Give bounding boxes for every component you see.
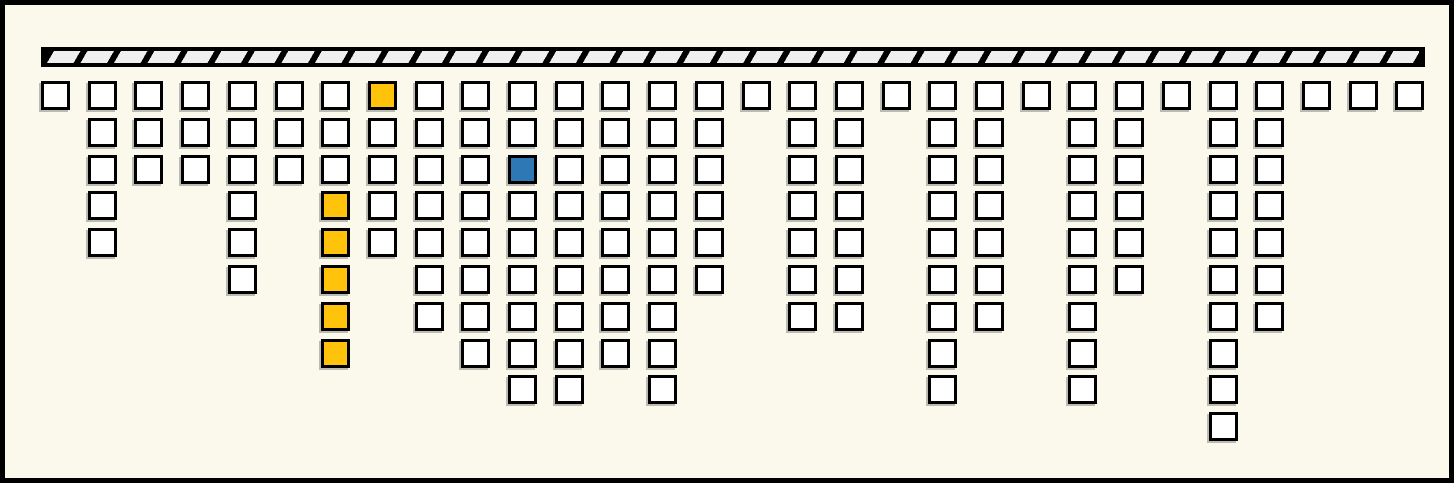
cell-c18-r6 [835, 265, 864, 294]
cell-c20-r2 [928, 118, 957, 147]
cell-c17-r2 [788, 118, 817, 147]
cell-c24-r5 [1115, 228, 1144, 257]
cell-c12-r9 [555, 375, 584, 404]
cell-c2-r2 [88, 118, 117, 147]
cell-c14-r6 [648, 265, 677, 294]
cell-c7-r8-yellow [321, 339, 350, 368]
cell-c8-r4 [368, 191, 397, 220]
cell-c12-r4 [555, 191, 584, 220]
cell-c16-r1 [742, 81, 771, 110]
cell-c7-r6-yellow [321, 265, 350, 294]
cell-c15-r2 [695, 118, 724, 147]
cell-c13-r2 [601, 118, 630, 147]
cell-c9-r3 [415, 155, 444, 184]
cell-c11-r1 [508, 81, 537, 110]
cell-c10-r1 [461, 81, 490, 110]
cell-c26-r2 [1209, 118, 1238, 147]
cell-c17-r1 [788, 81, 817, 110]
cell-c15-r1 [695, 81, 724, 110]
cell-c1-r1 [41, 81, 70, 110]
cell-c22-r1 [1022, 81, 1051, 110]
cell-c17-r7 [788, 302, 817, 331]
cell-c14-r9 [648, 375, 677, 404]
cell-c18-r5 [835, 228, 864, 257]
cell-c12-r6 [555, 265, 584, 294]
cell-c2-r5 [88, 228, 117, 257]
cell-c8-r2 [368, 118, 397, 147]
cell-c18-r3 [835, 155, 864, 184]
cell-c18-r2 [835, 118, 864, 147]
cell-c9-r1 [415, 81, 444, 110]
cell-c26-r8 [1209, 339, 1238, 368]
cell-c24-r6 [1115, 265, 1144, 294]
cell-c21-r7 [975, 302, 1004, 331]
cell-c11-r6 [508, 265, 537, 294]
cell-c5-r6 [228, 265, 257, 294]
cell-c15-r4 [695, 191, 724, 220]
cell-c15-r5 [695, 228, 724, 257]
cell-c24-r3 [1115, 155, 1144, 184]
cell-c9-r7 [415, 302, 444, 331]
cell-c5-r5 [228, 228, 257, 257]
cell-c20-r1 [928, 81, 957, 110]
cell-c24-r2 [1115, 118, 1144, 147]
cell-c21-r3 [975, 155, 1004, 184]
cell-c7-r2 [321, 118, 350, 147]
cell-c8-r5 [368, 228, 397, 257]
cell-c18-r7 [835, 302, 864, 331]
cell-c27-r2 [1255, 118, 1284, 147]
cell-c5-r1 [228, 81, 257, 110]
cell-c10-r2 [461, 118, 490, 147]
cell-c13-r3 [601, 155, 630, 184]
cell-c26-r6 [1209, 265, 1238, 294]
cell-c3-r2 [134, 118, 163, 147]
cell-c12-r5 [555, 228, 584, 257]
cell-c12-r1 [555, 81, 584, 110]
cell-c21-r1 [975, 81, 1004, 110]
cell-c12-r7 [555, 302, 584, 331]
cell-c4-r3 [181, 155, 210, 184]
cell-c21-r4 [975, 191, 1004, 220]
cell-c17-r4 [788, 191, 817, 220]
cell-c26-r5 [1209, 228, 1238, 257]
cell-c20-r7 [928, 302, 957, 331]
cell-c20-r9 [928, 375, 957, 404]
cell-c10-r7 [461, 302, 490, 331]
hatched-support-bar [41, 47, 1425, 67]
cell-c12-r2 [555, 118, 584, 147]
cell-c8-r3 [368, 155, 397, 184]
cell-c4-r1 [181, 81, 210, 110]
cell-c13-r5 [601, 228, 630, 257]
cell-c17-r6 [788, 265, 817, 294]
cell-c26-r7 [1209, 302, 1238, 331]
cell-c7-r7-yellow [321, 302, 350, 331]
cell-c14-r7 [648, 302, 677, 331]
cell-c20-r4 [928, 191, 957, 220]
cell-c5-r2 [228, 118, 257, 147]
cell-c11-r7 [508, 302, 537, 331]
cell-c23-r8 [1068, 339, 1097, 368]
cell-c27-r4 [1255, 191, 1284, 220]
cell-c23-r6 [1068, 265, 1097, 294]
cell-c30-r1 [1395, 81, 1424, 110]
cell-c23-r1 [1068, 81, 1097, 110]
cell-c2-r4 [88, 191, 117, 220]
cell-c20-r5 [928, 228, 957, 257]
cell-c14-r1 [648, 81, 677, 110]
cell-c21-r5 [975, 228, 1004, 257]
cell-c26-r3 [1209, 155, 1238, 184]
cell-c10-r3 [461, 155, 490, 184]
cell-c14-r5 [648, 228, 677, 257]
cell-c3-r3 [134, 155, 163, 184]
cell-c9-r2 [415, 118, 444, 147]
cell-c2-r3 [88, 155, 117, 184]
cell-c20-r8 [928, 339, 957, 368]
cell-c23-r7 [1068, 302, 1097, 331]
cell-c6-r2 [275, 118, 304, 147]
cell-c23-r2 [1068, 118, 1097, 147]
cell-c5-r4 [228, 191, 257, 220]
cell-c10-r8 [461, 339, 490, 368]
cell-c27-r7 [1255, 302, 1284, 331]
cell-c7-r5-yellow [321, 228, 350, 257]
cell-c15-r6 [695, 265, 724, 294]
cell-c24-r4 [1115, 191, 1144, 220]
cell-c13-r4 [601, 191, 630, 220]
cell-c27-r5 [1255, 228, 1284, 257]
cell-c23-r4 [1068, 191, 1097, 220]
cell-c13-r8 [601, 339, 630, 368]
cell-c6-r3 [275, 155, 304, 184]
cell-c3-r1 [134, 81, 163, 110]
cell-c27-r3 [1255, 155, 1284, 184]
cell-c9-r4 [415, 191, 444, 220]
cell-c21-r6 [975, 265, 1004, 294]
cell-c18-r4 [835, 191, 864, 220]
cell-c13-r7 [601, 302, 630, 331]
cell-c27-r1 [1255, 81, 1284, 110]
cell-c11-r5 [508, 228, 537, 257]
cell-c25-r1 [1162, 81, 1191, 110]
cell-c19-r1 [882, 81, 911, 110]
cell-c13-r1 [601, 81, 630, 110]
cell-c15-r3 [695, 155, 724, 184]
cell-c9-r5 [415, 228, 444, 257]
cell-c11-r8 [508, 339, 537, 368]
cell-c10-r5 [461, 228, 490, 257]
cell-c23-r5 [1068, 228, 1097, 257]
cell-c2-r1 [88, 81, 117, 110]
cell-c17-r5 [788, 228, 817, 257]
cell-c26-r4 [1209, 191, 1238, 220]
cell-c14-r2 [648, 118, 677, 147]
cell-c26-r10 [1209, 412, 1238, 441]
cell-c20-r6 [928, 265, 957, 294]
cell-c18-r1 [835, 81, 864, 110]
cell-c21-r2 [975, 118, 1004, 147]
cell-c11-r2 [508, 118, 537, 147]
cell-c26-r1 [1209, 81, 1238, 110]
cell-c9-r6 [415, 265, 444, 294]
cell-c4-r2 [181, 118, 210, 147]
cell-c24-r1 [1115, 81, 1144, 110]
diagram-canvas [0, 0, 1454, 483]
cell-c7-r4-yellow [321, 191, 350, 220]
cell-c10-r6 [461, 265, 490, 294]
cell-c11-r9 [508, 375, 537, 404]
cell-c12-r3 [555, 155, 584, 184]
cell-c26-r9 [1209, 375, 1238, 404]
cell-c6-r1 [275, 81, 304, 110]
cell-c20-r3 [928, 155, 957, 184]
cell-c23-r3 [1068, 155, 1097, 184]
cell-c11-r3-blue [508, 155, 537, 184]
cell-c13-r6 [601, 265, 630, 294]
cell-c14-r3 [648, 155, 677, 184]
cell-c23-r9 [1068, 375, 1097, 404]
cell-c7-r1 [321, 81, 350, 110]
cell-c28-r1 [1302, 81, 1331, 110]
cell-c10-r4 [461, 191, 490, 220]
cell-c17-r3 [788, 155, 817, 184]
cell-c29-r1 [1349, 81, 1378, 110]
cell-c11-r4 [508, 191, 537, 220]
cell-c14-r8 [648, 339, 677, 368]
cell-c27-r6 [1255, 265, 1284, 294]
cell-c5-r3 [228, 155, 257, 184]
cell-c7-r3 [321, 155, 350, 184]
cell-c14-r4 [648, 191, 677, 220]
cell-c12-r8 [555, 339, 584, 368]
cell-c8-r1-yellow [368, 81, 397, 110]
